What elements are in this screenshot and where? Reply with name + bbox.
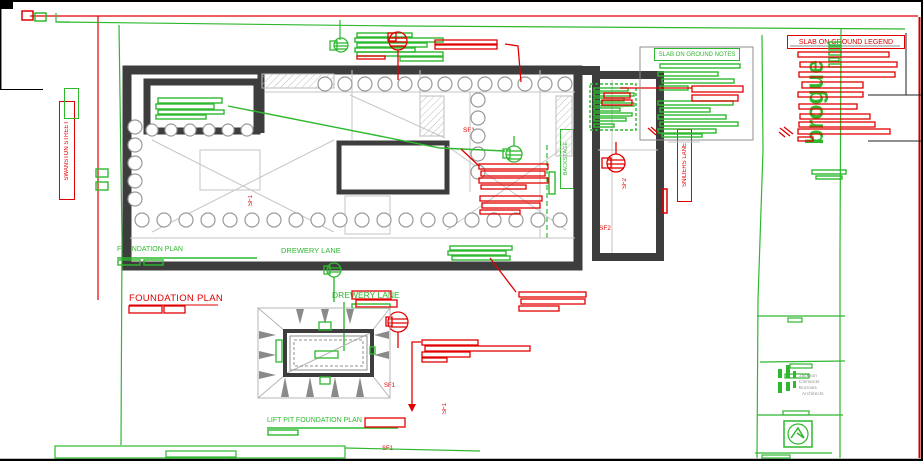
interior-partitions: [130, 70, 658, 253]
level-markers: [324, 32, 625, 348]
backstage-label-text: BACKSTAGE: [564, 142, 570, 175]
pile-circles: [128, 77, 572, 227]
architect-logo-icon: [778, 365, 796, 393]
slab-notes-title-text: SLAB ON GROUND NOTES: [659, 52, 736, 58]
street-label-left-text: SWANSTON STREET: [64, 121, 70, 181]
site-boundary-lines: [56, 13, 905, 458]
sf2-mark-vertical: SF2: [620, 175, 629, 193]
street-label-drewery-bottom: DREWERY LANE: [332, 291, 400, 300]
brogue-logo-text: brogue: [803, 60, 828, 145]
green-note-bars: [96, 33, 846, 435]
red-level-marker-icon: [388, 32, 407, 50]
sheet-frame: [0, 0, 923, 461]
green-level-marker-icon: [324, 263, 341, 277]
green-level-marker-icon: [330, 38, 348, 52]
red-note-bars: [129, 40, 897, 427]
drawing-sheet: { "sheet": { "titles": { "main_red": "FO…: [0, 0, 923, 461]
street-label-sniders: SNIDERS LANE: [677, 129, 692, 202]
architect-firm-name: Jackson Clements Burrows Architects: [799, 373, 824, 397]
pit-hatch-ticks: [259, 309, 389, 397]
sf2-mark: SF2: [599, 226, 611, 233]
boundary-note-box: [64, 88, 79, 119]
sf1-mark: SF1: [384, 383, 395, 389]
street-label-sniders-text: SNIDERS LANE: [682, 143, 688, 187]
notes-panel-frame: [640, 47, 753, 142]
lift-pit-plan-title: LIFT PIT FOUNDATION PLAN: [267, 417, 362, 424]
slab-notes-title: SLAB ON GROUND NOTES: [654, 48, 740, 61]
stamp-icon: [784, 421, 812, 447]
sf1-mark-vertical: SF1: [246, 192, 255, 210]
green-level-marker-icon: [503, 136, 522, 162]
red-detail-marker-icon: [386, 312, 408, 348]
street-label-drewery-top: DREWERY LANE: [281, 247, 341, 255]
firm-line: Architects: [799, 391, 824, 397]
backstage-label: BACKSTAGE: [560, 129, 574, 189]
sf1-mark: SF1: [463, 128, 475, 135]
sf1-mark-vertical: SF1: [440, 400, 449, 418]
plan-linework: [0, 0, 923, 461]
bottom-schedule-strip: [55, 446, 480, 458]
brogue-logo: brogue: [797, 30, 833, 175]
sf1-mark: SF1: [382, 446, 393, 452]
foundation-plan-subtitle: FOUNDATION PLAN: [117, 246, 183, 253]
foundation-plan-title: FOUNDATION PLAN: [129, 294, 223, 304]
red-level-marker-icon: [602, 142, 625, 172]
building-walls: [127, 70, 660, 266]
lift-pit-detail: [258, 308, 390, 398]
